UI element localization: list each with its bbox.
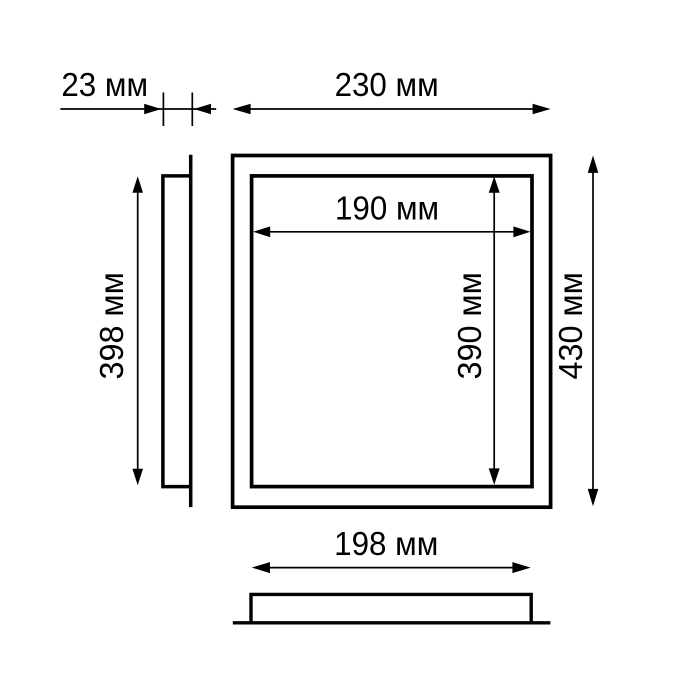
svg-text:198 мм: 198 мм — [334, 525, 438, 562]
svg-text:398 мм: 398 мм — [93, 272, 130, 379]
svg-text:430 мм: 430 мм — [552, 272, 589, 379]
svg-text:23 мм: 23 мм — [61, 66, 148, 103]
svg-text:230 мм: 230 мм — [335, 66, 439, 103]
svg-text:390 мм: 390 мм — [451, 272, 488, 379]
svg-text:190 мм: 190 мм — [335, 190, 439, 227]
